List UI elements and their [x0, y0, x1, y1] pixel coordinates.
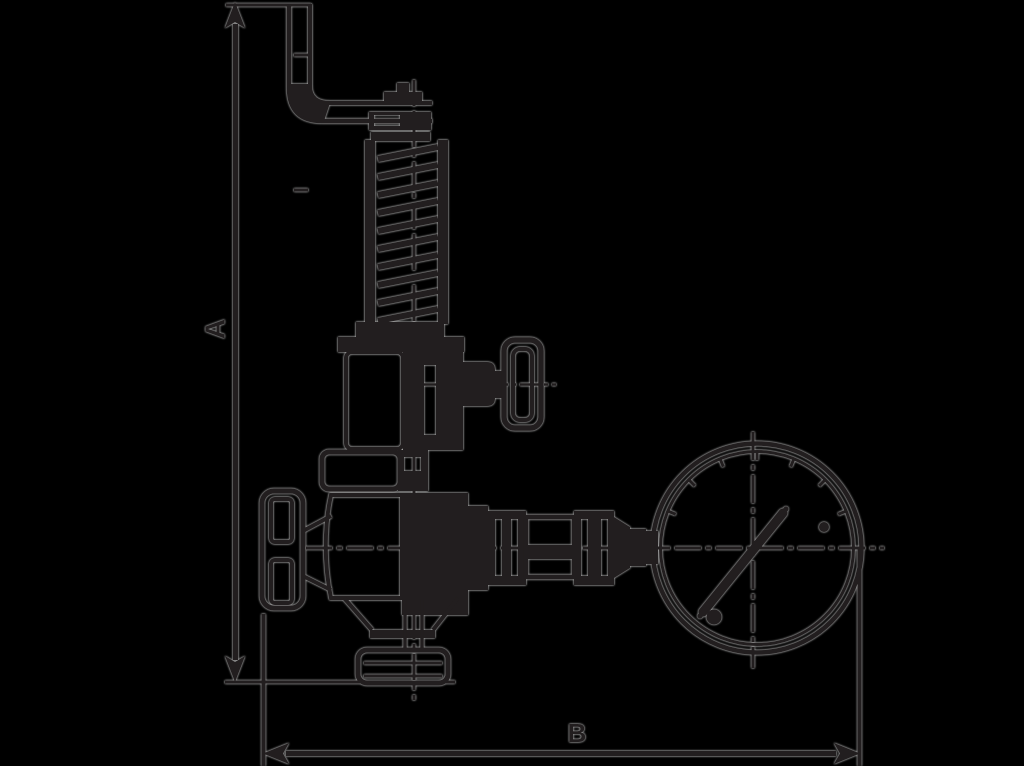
spring-housing — [356, 140, 448, 338]
adjusting-screw-stub — [397, 83, 409, 93]
pipe-taper — [614, 517, 630, 578]
test-lever-bend — [289, 84, 330, 121]
pipe-connector-stub — [466, 506, 488, 590]
bonnet-left-box — [346, 352, 403, 449]
pipe-stem — [630, 529, 646, 566]
outlet-union — [358, 650, 448, 683]
spring-housing-base — [356, 322, 444, 338]
gauge-needle-tip — [700, 509, 786, 616]
outlet-union-grooves — [364, 663, 442, 676]
spring-housing-left-post — [365, 140, 375, 324]
outlet-union-body — [358, 650, 448, 683]
gauge-needle-counterweight — [707, 610, 722, 625]
side-valve-body — [437, 362, 495, 406]
diagram-canvas: A B — [0, 0, 1024, 766]
gauge-stop-pin — [819, 522, 829, 532]
main-handwheel-window-bottom — [271, 560, 292, 603]
dimension-a-label: A — [200, 319, 231, 339]
test-lever-tick-marks — [294, 55, 308, 190]
valve-body — [326, 493, 468, 648]
spring-housing-right-post — [438, 140, 448, 324]
dimension-b: B — [263, 548, 860, 766]
adjusting-cap — [369, 83, 431, 141]
dimension-b-arrow-right-icon — [834, 743, 860, 764]
gauge-needle — [700, 509, 786, 625]
spring-coil — [378, 147, 438, 321]
dimension-b-arrow-left-icon — [263, 743, 289, 764]
valve-body-right-section — [402, 493, 468, 615]
main-handwheel-outer — [262, 491, 303, 608]
pipe-middle-band — [526, 545, 574, 559]
main-handwheel-window-top — [271, 499, 292, 542]
union-nut-left — [488, 511, 526, 585]
bonnet-top-plate — [338, 337, 464, 352]
locknut-band — [371, 132, 430, 141]
flange-left — [322, 452, 400, 489]
mounting-flange — [322, 450, 428, 491]
pressure-gauge — [653, 432, 862, 668]
adjusting-cap-top — [384, 92, 422, 103]
valve-drawing-svg: A B — [0, 0, 1024, 766]
gauge-piping — [466, 506, 658, 590]
union-nut-right — [574, 511, 614, 585]
valve-body-funnel-band — [370, 630, 435, 638]
dimension-b-label: B — [568, 718, 587, 748]
